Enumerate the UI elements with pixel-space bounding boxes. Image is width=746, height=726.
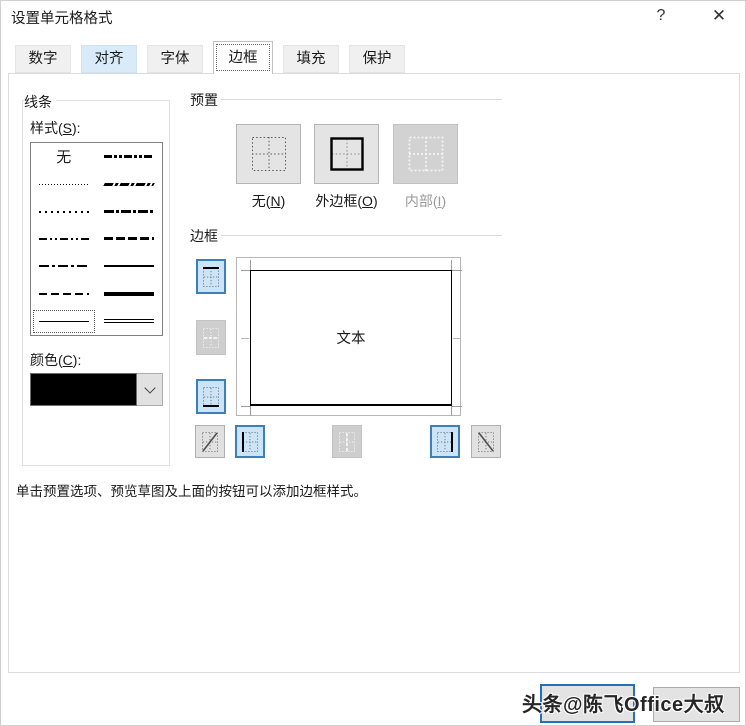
line-style-sample-dash-dot-dot [39,238,89,240]
horizontal-middle-border-button [196,320,226,355]
line-style-sample-dash-dot [39,265,89,267]
border-group-title: 边框 [190,226,222,246]
line-style-sample-medium-solid [104,265,154,267]
horizontal-middle-border-icon [201,326,221,350]
line-style-option-thin-solid[interactable] [31,308,97,335]
top-border-icon [201,265,221,289]
tab-border[interactable]: 边框 [213,41,273,74]
preset-none: 无(N) [236,124,301,184]
preview-cell: 文本 [250,270,452,406]
vertical-middle-border-button [332,425,362,458]
preset-outline-label: 外边框(O) [315,191,377,211]
chevron-down-icon [144,382,155,393]
border-preview[interactable]: 文本 [236,257,461,416]
border-divider [221,235,502,236]
tick-mark [451,260,452,270]
format-cells-dialog: 设置单元格格式 ? ✕ 数字对齐字体边框填充保护 线条 样式(S): 无 颜色(… [0,0,746,726]
line-group-title: 线条 [24,92,56,112]
border-tab-page: 线条 样式(S): 无 颜色(C): 预置 无(N) 外边框(O) [8,73,740,673]
bottom-border-button[interactable] [196,379,226,414]
help-button[interactable]: ? [648,3,674,29]
line-style-sample-thin-solid [39,321,89,322]
color-swatch [30,373,137,406]
diagonal-up-border-button[interactable] [195,425,225,458]
line-style-option-dash-dot-dot[interactable] [31,225,97,252]
right-border-button[interactable] [430,425,460,458]
bottom-border-icon [201,385,221,409]
line-style-option-none[interactable]: 无 [31,143,97,170]
line-style-sample-dotted [39,211,89,213]
right-border-icon [435,430,455,454]
preset-outline-button[interactable] [314,124,379,184]
line-style-sample-thick-solid [104,292,154,296]
dialog-title: 设置单元格格式 [11,7,113,28]
tab-font[interactable]: 字体 [147,45,203,73]
preset-none-button[interactable] [236,124,301,184]
diagonal-down-border-icon [476,430,496,454]
line-style-option-hairline[interactable] [31,170,97,197]
watermark-text: 头条@陈飞Office大叔 [522,688,725,717]
line-style-none-label: 无 [56,146,71,167]
color-dropdown[interactable] [30,373,163,406]
presets-group-title: 预置 [190,90,222,110]
line-style-option-medium-dash-dot[interactable] [97,198,163,225]
tab-alignment[interactable]: 对齐 [81,45,137,73]
tab-protection[interactable]: 保护 [349,45,405,73]
line-style-sample-slant-dash-dot [103,183,155,186]
preset-inside-button [393,124,458,184]
line-style-option-dash-dot[interactable] [31,253,97,280]
tick-mark [241,338,249,339]
titlebar: 设置单元格格式 ? ✕ [1,1,745,31]
preview-text: 文本 [337,327,366,348]
line-style-option-slant-dash-dot[interactable] [97,170,163,197]
tick-mark [453,338,461,339]
line-style-option-dotted[interactable] [31,198,97,225]
tick-mark [452,270,462,271]
presets-divider [221,99,502,100]
top-border-button[interactable] [196,259,226,294]
tick-mark [250,260,251,270]
tab-strip: 数字对齐字体边框填充保护 [15,42,415,73]
preset-inside: 内部(I) [393,124,458,184]
line-style-sample-medium-dash-dot [104,210,154,213]
line-style-sample-hairline [39,184,89,185]
line-style-sample-medium-dash-dot-dot [104,155,154,158]
preset-none-icon [249,134,289,174]
line-style-sample-medium-dashed [104,237,154,240]
vertical-middle-border-icon [337,430,357,454]
line-style-sample-double [104,319,154,323]
preset-outline-icon [327,134,367,174]
line-style-option-double[interactable] [97,308,163,335]
left-border-button[interactable] [235,425,265,458]
preset-inside-icon [406,134,446,174]
line-style-sample-dashed [39,293,89,295]
line-style-option-thick-solid[interactable] [97,280,163,307]
line-style-option-medium-solid[interactable] [97,253,163,280]
color-label: 颜色(C): [30,350,81,370]
hint-text: 单击预置选项、预览草图及上面的按钮可以添加边框样式。 [16,480,367,500]
left-border-icon [240,430,260,454]
tick-mark [250,406,251,416]
line-style-list[interactable]: 无 [30,142,163,336]
preset-inside-label: 内部(I) [405,191,446,211]
tab-fill[interactable]: 填充 [283,45,339,73]
preset-outline: 外边框(O) [314,124,379,184]
diagonal-down-border-button[interactable] [471,425,501,458]
tick-mark [452,406,462,407]
line-style-option-dashed[interactable] [31,280,97,307]
close-icon[interactable]: ✕ [706,3,732,29]
style-label: 样式(S): [30,118,81,138]
preset-none-label: 无(N) [252,191,285,211]
color-dropdown-button[interactable] [137,373,163,406]
tick-mark [451,406,452,416]
diagonal-up-border-icon [200,430,220,454]
tab-number[interactable]: 数字 [15,45,71,73]
line-style-option-medium-dash-dot-dot[interactable] [97,143,163,170]
line-style-option-medium-dashed[interactable] [97,225,163,252]
